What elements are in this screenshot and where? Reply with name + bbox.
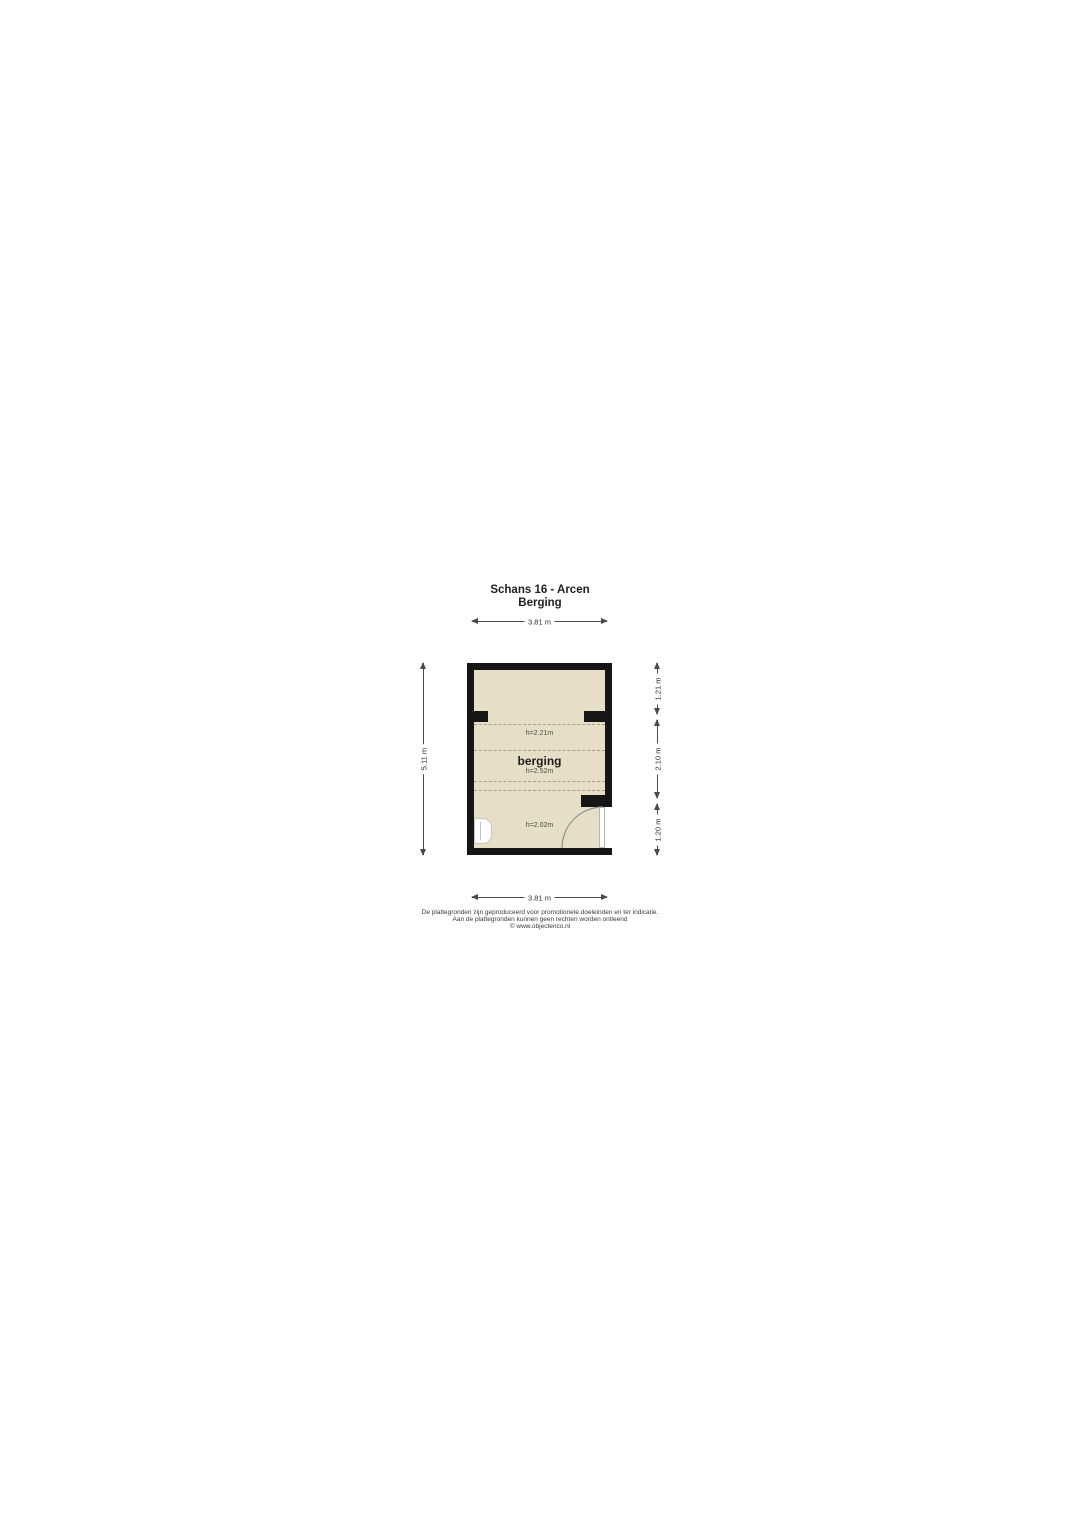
room-berging: h=2.21m berging h=2.52m h=2.02m bbox=[474, 670, 605, 848]
dimension-right-3-label: 1.20 m bbox=[654, 814, 663, 845]
door-opening bbox=[605, 807, 612, 848]
arrow-up-icon bbox=[654, 803, 660, 810]
arrow-down-icon bbox=[654, 708, 660, 715]
dimension-right-1: 1.21 m bbox=[657, 663, 658, 714]
page-title: Schans 16 - Arcen Berging bbox=[0, 584, 1080, 610]
title-address: Schans 16 - Arcen bbox=[0, 584, 1080, 597]
disclaimer-copyright: © www.objectenco.nl bbox=[0, 923, 1080, 930]
door-swing-icon bbox=[474, 670, 605, 848]
arrow-up-icon bbox=[420, 662, 426, 669]
dimension-right-3: 1.20 m bbox=[657, 804, 658, 855]
disclaimer-line2: Aan de plattegronden kunnen geen rechten… bbox=[0, 916, 1080, 923]
arrow-down-icon bbox=[420, 849, 426, 856]
dimension-top-label: 3.81 m bbox=[524, 618, 555, 627]
dimension-right-2-label: 2.10 m bbox=[654, 744, 663, 775]
dimension-right-1-label: 1.21 m bbox=[654, 673, 663, 704]
arrow-right-icon bbox=[601, 894, 608, 900]
arrow-up-icon bbox=[654, 719, 660, 726]
dimension-bottom: 3.81 m bbox=[472, 897, 607, 898]
title-floor: Berging bbox=[0, 597, 1080, 610]
arrow-down-icon bbox=[654, 792, 660, 799]
arrow-right-icon bbox=[601, 618, 608, 624]
arrow-down-icon bbox=[654, 849, 660, 856]
arrow-up-icon bbox=[654, 662, 660, 669]
dimension-right-2: 2.10 m bbox=[657, 720, 658, 798]
dimension-bottom-label: 3.81 m bbox=[524, 894, 555, 903]
arrow-left-icon bbox=[471, 618, 478, 624]
floorplan-page: Schans 16 - Arcen Berging 3.81 m 5.11 m … bbox=[0, 0, 1080, 1527]
dimension-left: 5.11 m bbox=[423, 663, 424, 855]
arrow-left-icon bbox=[471, 894, 478, 900]
floor-plan-outline: h=2.21m berging h=2.52m h=2.02m bbox=[467, 663, 612, 855]
dimension-top: 3.81 m bbox=[472, 621, 607, 622]
disclaimer: De plattegronden zijn geproduceerd voor … bbox=[0, 909, 1080, 930]
dimension-left-label: 5.11 m bbox=[420, 744, 429, 774]
disclaimer-line1: De plattegronden zijn geproduceerd voor … bbox=[0, 909, 1080, 916]
